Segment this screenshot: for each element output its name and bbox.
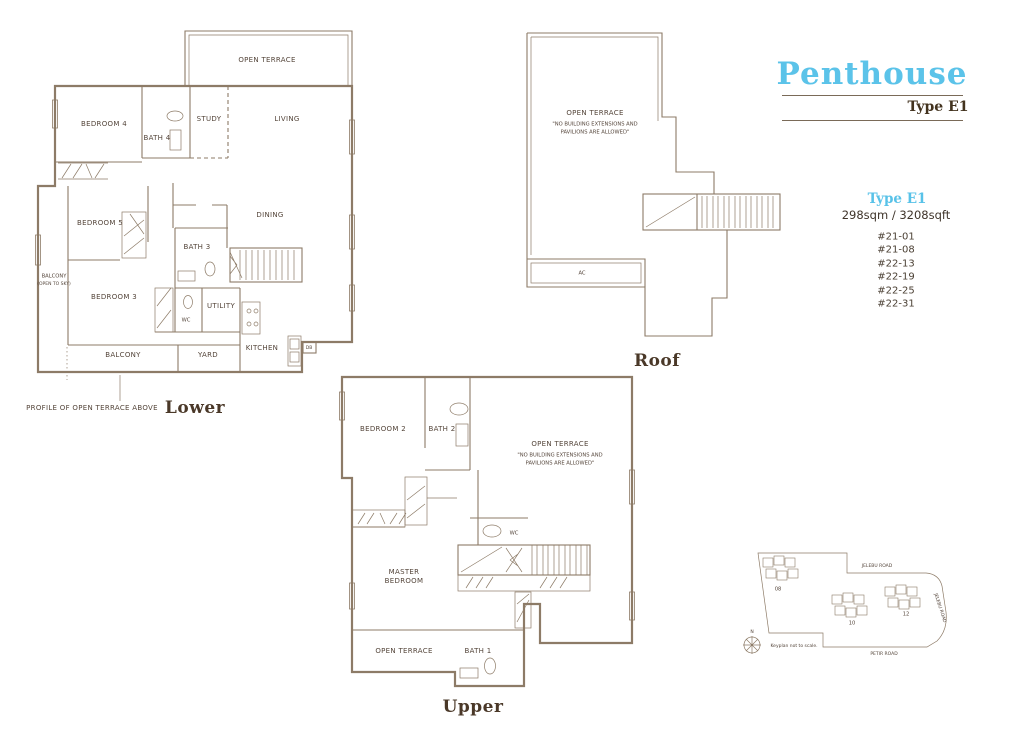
page-subtitle: Type E1 — [908, 99, 969, 115]
keyplan-block-10 — [832, 593, 867, 617]
title-rule-top — [782, 95, 963, 96]
roof-terrace-note-2: PAVILIONS ARE ALLOWED" — [561, 129, 630, 135]
compass-north-label: N — [750, 630, 753, 635]
road-label-top: JELEBU ROAD — [862, 564, 892, 569]
room-label-bedroom3: BEDROOM 3 — [91, 293, 137, 301]
unit-number: #22-19 — [877, 272, 914, 283]
room-label-bath3: BATH 3 — [183, 243, 210, 251]
upper-terrace-note-1: "NO BUILDING EXTENSIONS AND — [517, 452, 602, 458]
room-label-balcony-open: BALCONY — [42, 273, 67, 279]
room-label-dining: DINING — [256, 211, 283, 219]
roof-terrace-note-1: "NO BUILDING EXTENSIONS AND — [552, 121, 637, 127]
roof-plan-caption: Roof — [634, 351, 680, 371]
room-label-balcony-open-sub: (OPEN TO SKY) — [37, 282, 71, 287]
room-label-master-1: MASTER — [389, 568, 420, 576]
upper-plan-drawing — [340, 377, 635, 686]
room-label-bath1: BATH 1 — [464, 647, 491, 655]
room-label-bedroom5: BEDROOM 5 — [77, 219, 123, 227]
room-label-kitchen: KITCHEN — [246, 344, 278, 352]
keyplan-drawing — [743, 553, 946, 654]
page-title: Penthouse — [777, 56, 968, 92]
room-label-bedroom4: BEDROOM 4 — [81, 120, 127, 128]
room-label-master-2: BEDROOM — [385, 577, 424, 585]
room-label-open-terrace: OPEN TERRACE — [238, 56, 295, 64]
room-label-study: STUDY — [197, 115, 222, 123]
unit-number: #21-01 — [877, 232, 914, 243]
unit-number: #22-13 — [877, 259, 914, 270]
block-label-10: 10 — [849, 620, 856, 626]
keyplan-note: Keyplan not to scale. — [770, 644, 817, 649]
unit-area: 298sqm / 3208sqft — [842, 208, 951, 222]
room-label-utility: UTILITY — [207, 302, 235, 310]
title-rule-bottom — [782, 120, 963, 121]
room-label-ac: AC — [578, 270, 585, 276]
room-label-roof-terrace: OPEN TERRACE — [566, 109, 623, 117]
keyplan-block-08 — [763, 556, 798, 580]
floorplan-linework — [0, 0, 1034, 738]
unit-number: #21-08 — [877, 245, 914, 256]
room-label-living: LIVING — [274, 115, 299, 123]
lower-plan-caption: Lower — [165, 398, 225, 418]
room-label-wc: WC — [182, 317, 191, 323]
unit-number: #22-31 — [877, 299, 914, 310]
room-label-terrace2: OPEN TERRACE — [375, 647, 432, 655]
room-label-upper-wc: WC — [510, 530, 519, 536]
room-label-upper-terrace: OPEN TERRACE — [531, 440, 588, 448]
roof-plan-drawing — [527, 33, 780, 336]
upper-terrace-note-2: PAVILIONS ARE ALLOWED" — [526, 460, 595, 466]
room-label-balcony: BALCONY — [105, 351, 141, 359]
upper-plan-caption: Upper — [443, 697, 504, 717]
floorplan-brochure-page: Penthouse Type E1 Type E1 298sqm / 3208s… — [0, 0, 1034, 738]
room-label-bath2: BATH 2 — [428, 425, 455, 433]
room-label-bedroom2: BEDROOM 2 — [360, 425, 406, 433]
room-label-yard: YARD — [198, 351, 218, 359]
unit-type-heading: Type E1 — [868, 191, 927, 207]
road-label-bottom: PETIR ROAD — [870, 652, 897, 657]
keyplan-compass-icon — [743, 636, 761, 654]
block-label-08: 08 — [775, 586, 782, 592]
room-label-bath4: BATH 4 — [143, 134, 170, 142]
block-label-12: 12 — [903, 611, 910, 617]
keyplan-block-12 — [885, 585, 920, 609]
room-label-db: DB — [306, 346, 313, 351]
unit-number: #22-25 — [877, 286, 914, 297]
profile-note: PROFILE OF OPEN TERRACE ABOVE — [26, 404, 158, 412]
